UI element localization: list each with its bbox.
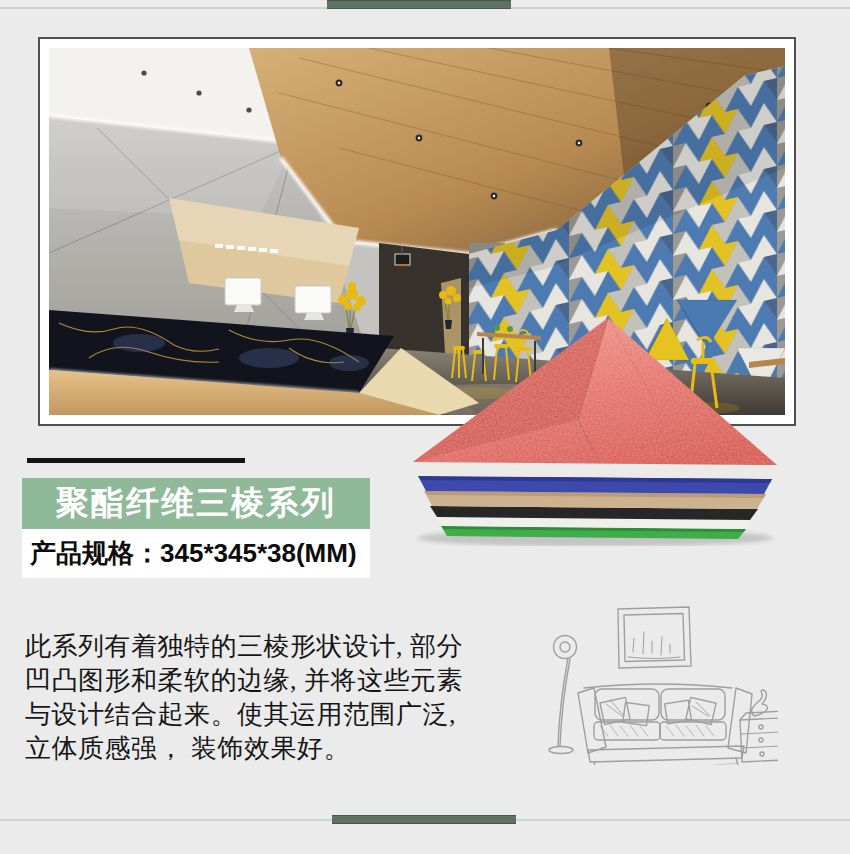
triangle-panel-stack — [405, 312, 785, 546]
sketch-sofa — [578, 684, 752, 765]
series-title-text: 聚酯纤维三棱系列 — [56, 481, 336, 526]
sketch-picture-frame — [618, 607, 691, 668]
description-line: 立体质感强， 装饰效果好。 — [25, 732, 475, 766]
sketch-floor-lamp — [549, 636, 577, 754]
series-title-banner: 聚酯纤维三棱系列 — [22, 478, 370, 529]
top-accent-bar — [327, 0, 511, 9]
product-spec-box: 产品规格：345*345*38(MM) — [22, 529, 370, 578]
series-title-underline — [27, 458, 245, 463]
living-room-sketch — [548, 600, 778, 765]
description-line: 与设计结合起来。使其运用范围广泛, — [25, 698, 475, 732]
bottom-accent-bar — [332, 815, 516, 824]
product-spec-text: 产品规格：345*345*38(MM) — [30, 536, 357, 571]
red-top-panel — [413, 318, 777, 465]
stack-layers — [413, 462, 777, 539]
description-line: 此系列有着独特的三棱形状设计, 部分 — [25, 630, 475, 664]
product-description: 此系列有着独特的三棱形状设计, 部分 凹凸图形和柔软的边缘, 并将这些元素 与设… — [25, 630, 475, 766]
description-line: 凹凸图形和柔软的边缘, 并将这些元素 — [25, 664, 475, 698]
